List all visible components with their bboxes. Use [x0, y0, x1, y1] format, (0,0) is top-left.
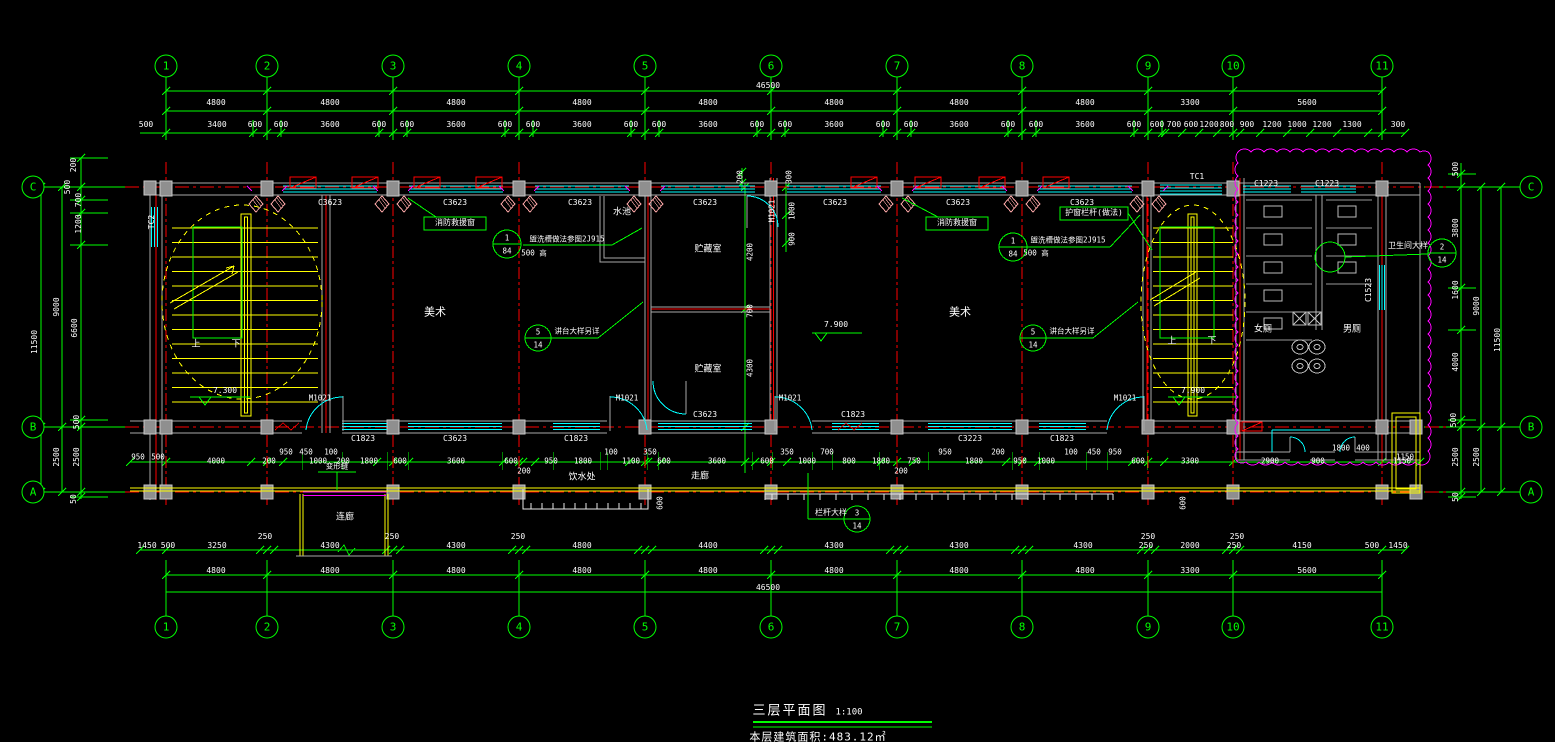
dim-detail-top: 500 — [139, 121, 153, 129]
window-tag: C1823 — [564, 435, 588, 443]
dim-inner: 200 — [736, 170, 744, 184]
dim-inner: 1800 — [574, 457, 592, 465]
note-label: 讲台大样另详 — [1050, 327, 1095, 335]
dim-inner: 4000 — [207, 457, 225, 465]
window-tag: C3623 — [443, 199, 467, 207]
dim-detail-top: 1200 — [1312, 121, 1331, 129]
dim-left: 200 — [70, 158, 78, 172]
dim-detail-bottom: 4300 — [949, 542, 968, 550]
dim-bay-bottom: 4800 — [698, 567, 717, 575]
dim-detail-top: 3600 — [572, 121, 591, 129]
dim-bay-top: 4800 — [949, 99, 968, 107]
grid-bubble-col-9-bottom: 9 — [1137, 616, 1160, 639]
dim-left: 9000 — [53, 297, 61, 316]
note-label: 500 高 — [1023, 249, 1049, 257]
dim-detail-bottom: 250 — [1230, 533, 1244, 541]
dim-inner: 200 — [262, 457, 276, 465]
dim-inner: 600 — [656, 496, 664, 510]
dim-detail-top: 600 — [498, 121, 512, 129]
dim-detail-top: 3400 — [207, 121, 226, 129]
callout-number: 14 — [1437, 256, 1446, 264]
callout-number: 14 — [1028, 341, 1037, 349]
dim-bay-top: 5600 — [1297, 99, 1316, 107]
dim-inner: 700 — [820, 448, 834, 456]
grid-bubble-col-4-bottom: 4 — [508, 616, 531, 639]
note-label: 盥洗槽做法参图2J915 — [529, 235, 604, 243]
dim-right: 11500 — [1494, 328, 1502, 352]
grid-bubble-col-5-bottom: 5 — [634, 616, 657, 639]
dim-left: 50 — [70, 494, 78, 504]
room-label: 饮水处 — [568, 474, 595, 483]
callout-number: 5 — [1031, 328, 1036, 336]
dim-right: 1600 — [1452, 280, 1460, 299]
note-label: 消防救援窗 — [435, 219, 475, 227]
grid-bubble-col-5-top: 5 — [634, 55, 657, 78]
dim-detail-bottom: 1450 — [137, 542, 156, 550]
callout-number: 5 — [536, 328, 541, 336]
callout-number: 14 — [533, 341, 542, 349]
dim-inner: 2900 — [1261, 457, 1279, 465]
dim-detail-top: 600 — [248, 121, 262, 129]
dim-detail-top: 600 — [372, 121, 386, 129]
dim-inner: 950 — [279, 448, 293, 456]
window-tag: C3623 — [693, 411, 717, 419]
grid-bubble-col-11-bottom: 11 — [1371, 616, 1394, 639]
dim-detail-top: 600 — [1184, 121, 1198, 129]
dim-inner: 600 — [760, 457, 774, 465]
dim-detail-top: 600 — [1127, 121, 1141, 129]
dim-right: 4000 — [1452, 352, 1460, 371]
stair-label: 上 — [1167, 338, 1176, 347]
dim-detail-bottom: 250 — [385, 533, 399, 541]
dim-inner: 950 — [1108, 448, 1122, 456]
dim-bay-top: 4800 — [824, 99, 843, 107]
grid-bubble-col-10-bottom: 10 — [1222, 616, 1245, 639]
window-tag: TC1 — [1190, 173, 1204, 181]
window-tag: C3623 — [443, 435, 467, 443]
dim-detail-top: 3600 — [446, 121, 465, 129]
dim-inner: 200 — [991, 448, 1005, 456]
dim-inner: 800 — [842, 457, 856, 465]
stair-label: 下 — [231, 341, 240, 350]
dim-detail-bottom: 4150 — [1292, 542, 1311, 550]
dim-inner: 1000 — [798, 457, 816, 465]
dim-detail-top: 3600 — [320, 121, 339, 129]
dim-detail-top: 600 — [778, 121, 792, 129]
note-label: 护窗栏杆(做法) — [1065, 209, 1123, 217]
dim-detail-top: 800 — [1220, 121, 1234, 129]
dim-inner: 950 — [131, 453, 145, 461]
dim-inner: 600 — [1179, 496, 1187, 510]
dim-detail-top: 600 — [1029, 121, 1043, 129]
dim-inner: 1000 — [788, 202, 796, 220]
dim-inner: 950 — [544, 457, 558, 465]
dim-detail-top: 1000 — [1287, 121, 1306, 129]
dim-right: 3800 — [1452, 218, 1460, 237]
grid-bubble-col-3-top: 3 — [382, 55, 405, 78]
dim-bay-bottom: 4800 — [949, 567, 968, 575]
room-label: 贮藏室 — [694, 246, 721, 255]
dim-detail-top: 600 — [624, 121, 638, 129]
room-label: 贮藏室 — [694, 366, 721, 375]
dim-detail-top: 1200 — [1262, 121, 1281, 129]
dim-total-top: 46500 — [756, 82, 780, 90]
dim-inner: 950 — [938, 448, 952, 456]
dim-detail-top: 600 — [1001, 121, 1015, 129]
dim-inner: 1000 — [309, 457, 327, 465]
grid-bubble-row-A-right: A — [1520, 481, 1543, 504]
room-label: 美术 — [424, 307, 446, 318]
dim-detail-top: 3600 — [949, 121, 968, 129]
annotation-layer: 三层平面图 1:100 本层建筑面积:483.12㎡ 1122334455667… — [0, 0, 1555, 742]
room-label: 美术 — [949, 307, 971, 318]
dim-detail-top: 3600 — [1075, 121, 1094, 129]
note-label: 讲台大样另详 — [555, 327, 600, 335]
dim-bay-bottom: 5600 — [1297, 567, 1316, 575]
window-tag: C3623 — [568, 199, 592, 207]
callout-number: 84 — [1008, 250, 1017, 258]
note-label: 栏杆大样 — [815, 509, 847, 517]
dim-detail-bottom: 250 — [1141, 533, 1155, 541]
grid-bubble-row-A-left: A — [22, 481, 45, 504]
dim-inner: 4300 — [746, 359, 754, 377]
grid-bubble-row-B-left: B — [22, 416, 45, 439]
dim-inner: 750 — [907, 457, 921, 465]
dim-detail-top: 1200 — [1199, 121, 1218, 129]
elevation-label: 7.900 — [1181, 387, 1205, 395]
dim-detail-bottom: 250 — [258, 533, 272, 541]
dim-left: 500 — [73, 415, 81, 429]
note-label: 变形缝 — [326, 462, 349, 470]
room-label: 连廊 — [336, 514, 354, 523]
note-label: 消防救援窗 — [937, 219, 977, 227]
dim-bay-top: 4800 — [1075, 99, 1094, 107]
window-tag: C1823 — [1050, 435, 1074, 443]
dim-inner: 300 — [785, 170, 793, 184]
grid-bubble-col-8-top: 8 — [1011, 55, 1034, 78]
window-tag: C3623 — [823, 199, 847, 207]
dim-left: 1200 — [75, 214, 83, 233]
dim-inner: 1000 — [1037, 457, 1055, 465]
dim-inner: 1800 — [872, 457, 890, 465]
dim-left: 2500 — [53, 447, 61, 466]
dim-detail-top: 600 — [274, 121, 288, 129]
dim-detail-bottom: 250 — [1227, 542, 1241, 550]
dim-left: 11500 — [31, 330, 39, 354]
window-tag: C1823 — [351, 435, 375, 443]
grid-bubble-col-6-bottom: 6 — [760, 616, 783, 639]
grid-bubble-col-2-top: 2 — [256, 55, 279, 78]
grid-bubble-col-4-top: 4 — [508, 55, 531, 78]
dim-inner: 600 — [1131, 457, 1145, 465]
dim-inner: 450 — [1087, 448, 1101, 456]
dim-right: 500 — [1452, 162, 1460, 176]
dim-detail-bottom: 500 — [1365, 542, 1379, 550]
dim-detail-bottom: 3250 — [207, 542, 226, 550]
dim-right: 2500 — [1473, 447, 1481, 466]
dim-detail-bottom: 4300 — [446, 542, 465, 550]
dim-bay-bottom: 4800 — [824, 567, 843, 575]
dim-bay-top: 4800 — [206, 99, 225, 107]
grid-bubble-row-B-right: B — [1520, 416, 1543, 439]
dim-detail-top: 600 — [652, 121, 666, 129]
window-tag: C3623 — [1070, 199, 1094, 207]
window-tag: C1223 — [1315, 180, 1339, 188]
dim-bay-bottom: 4800 — [1075, 567, 1094, 575]
dim-inner: 950 — [1013, 457, 1027, 465]
dim-bay-bottom: 3300 — [1180, 567, 1199, 575]
dim-detail-bottom: 4300 — [824, 542, 843, 550]
dim-detail-top: 1300 — [1342, 121, 1361, 129]
stair-label: 下 — [1207, 338, 1216, 347]
dim-detail-bottom: 500 — [161, 542, 175, 550]
dim-bay-top: 4800 — [320, 99, 339, 107]
dim-left: 500 — [64, 180, 72, 194]
grid-bubble-col-10-top: 10 — [1222, 55, 1245, 78]
dim-bay-bottom: 4800 — [446, 567, 465, 575]
door-tag: M1021 — [309, 394, 332, 402]
dim-inner: 350 — [643, 448, 657, 456]
grid-bubble-col-7-top: 7 — [886, 55, 909, 78]
dim-detail-top: 600 — [400, 121, 414, 129]
dim-left: 6600 — [71, 318, 79, 337]
drawing-area-note: 本层建筑面积:483.12㎡ — [749, 732, 886, 742]
dim-inner: 1100 — [622, 457, 640, 465]
dim-detail-top: 300 — [1391, 121, 1405, 129]
dim-total-bottom: 46500 — [756, 584, 780, 592]
callout-number: 1 — [505, 234, 510, 242]
dim-right: 500 — [1450, 413, 1458, 427]
window-tag: C3623 — [946, 199, 970, 207]
grid-bubble-row-C-right: C — [1520, 176, 1543, 199]
dim-inner: 3300 — [1181, 457, 1199, 465]
dim-detail-bottom: 250 — [511, 533, 525, 541]
room-label: 男厕 — [1343, 326, 1361, 335]
note-label: 盥洗槽做法参图2J915 — [1030, 236, 1105, 244]
dim-detail-top: 600 — [1150, 121, 1164, 129]
callout-number: 84 — [502, 247, 511, 255]
dim-detail-bottom: 4400 — [698, 542, 717, 550]
note-label: 卫生间大样 — [1388, 242, 1428, 250]
dim-detail-top: 600 — [750, 121, 764, 129]
dim-left: 2500 — [73, 447, 81, 466]
drawing-scale: 1:100 — [835, 709, 862, 718]
door-tag: M1021 — [779, 394, 802, 402]
dim-bay-top: 4800 — [698, 99, 717, 107]
callout-number: 14 — [852, 522, 861, 530]
callout-number: 2 — [1440, 243, 1445, 251]
dim-inner: 700 — [746, 304, 754, 318]
dim-inner: 3600 — [708, 457, 726, 465]
dim-detail-top: 3600 — [698, 121, 717, 129]
dim-detail-top: 600 — [904, 121, 918, 129]
grid-bubble-col-1-bottom: 1 — [155, 616, 178, 639]
dim-inner: 600 — [393, 457, 407, 465]
callout-number: 1 — [1011, 237, 1016, 245]
dim-detail-top: 3600 — [824, 121, 843, 129]
dim-inner: 200 — [894, 467, 908, 475]
dim-bay-top: 4800 — [572, 99, 591, 107]
grid-bubble-col-3-bottom: 3 — [382, 616, 405, 639]
dim-detail-bottom: 2000 — [1180, 542, 1199, 550]
dim-inner: 100 — [604, 448, 618, 456]
grid-bubble-col-11-top: 11 — [1371, 55, 1394, 78]
dim-right: 50 — [1452, 492, 1460, 502]
dim-inner: 200 — [517, 467, 531, 475]
dim-inner: 400 — [1356, 444, 1370, 452]
dim-inner: 900 — [788, 232, 796, 246]
dim-detail-top: 900 — [1240, 121, 1254, 129]
window-tag: C1523 — [1365, 278, 1373, 302]
dim-inner: 3600 — [447, 457, 465, 465]
dim-detail-bottom: 4800 — [572, 542, 591, 550]
window-tag: C1223 — [1254, 180, 1278, 188]
dim-inner: 1800 — [965, 457, 983, 465]
dim-bay-top: 4800 — [446, 99, 465, 107]
room-label: 女厕 — [1254, 326, 1272, 335]
dim-left: 700 — [75, 193, 83, 207]
stair-label: 上 — [191, 341, 200, 350]
window-tag: C1823 — [841, 411, 865, 419]
dim-inner: 450 — [299, 448, 313, 456]
window-tag: C3623 — [693, 199, 717, 207]
dim-bay-bottom: 4800 — [572, 567, 591, 575]
dim-inner: 100 — [324, 448, 338, 456]
dim-detail-bottom: 1450 — [1388, 542, 1407, 550]
dim-inner: 900 — [1311, 457, 1325, 465]
dim-right: 2500 — [1452, 447, 1460, 466]
grid-bubble-col-8-bottom: 8 — [1011, 616, 1034, 639]
dim-right: 1150 — [1396, 453, 1414, 461]
dim-inner: 4200 — [746, 243, 754, 261]
grid-bubble-row-C-left: C — [22, 176, 45, 199]
dim-right: 9000 — [1473, 296, 1481, 315]
elevation-label: 7.300 — [213, 387, 237, 395]
dim-detail-bottom: 4300 — [320, 542, 339, 550]
dim-bay-bottom: 4800 — [206, 567, 225, 575]
dim-bay-bottom: 4800 — [320, 567, 339, 575]
window-tag: C3623 — [318, 199, 342, 207]
dim-inner: 600 — [504, 457, 518, 465]
dim-inner: 350 — [780, 448, 794, 456]
drawing-title: 三层平面图 — [752, 705, 827, 718]
elevation-label: 7.900 — [824, 321, 848, 329]
door-tag: M1021 — [768, 200, 776, 223]
dim-inner: 100 — [1064, 448, 1078, 456]
dim-inner: 600 — [657, 457, 671, 465]
grid-bubble-col-9-top: 9 — [1137, 55, 1160, 78]
dim-detail-bottom: 250 — [1139, 542, 1153, 550]
dim-detail-top: 600 — [876, 121, 890, 129]
dim-bay-top: 3300 — [1180, 99, 1199, 107]
note-label: 500 高 — [521, 249, 547, 257]
window-tag: TC2 — [148, 215, 156, 229]
dim-detail-top: 600 — [526, 121, 540, 129]
room-label: 水池 — [613, 209, 631, 218]
dim-inner: 1800 — [1332, 444, 1350, 452]
dim-detail-bottom: 4300 — [1073, 542, 1092, 550]
cad-canvas: 三层平面图 1:100 本层建筑面积:483.12㎡ 1122334455667… — [0, 0, 1555, 742]
door-tag: M1021 — [1114, 394, 1137, 402]
room-label: 走廊 — [691, 473, 709, 482]
grid-bubble-col-2-bottom: 2 — [256, 616, 279, 639]
door-tag: M1021 — [616, 394, 639, 402]
dim-inner: 500 — [151, 453, 165, 461]
dim-detail-top: 700 — [1167, 121, 1181, 129]
grid-bubble-col-7-bottom: 7 — [886, 616, 909, 639]
dim-inner: 1800 — [360, 457, 378, 465]
grid-bubble-col-1-top: 1 — [155, 55, 178, 78]
window-tag: C3223 — [958, 435, 982, 443]
callout-number: 3 — [855, 509, 860, 517]
grid-bubble-col-6-top: 6 — [760, 55, 783, 78]
